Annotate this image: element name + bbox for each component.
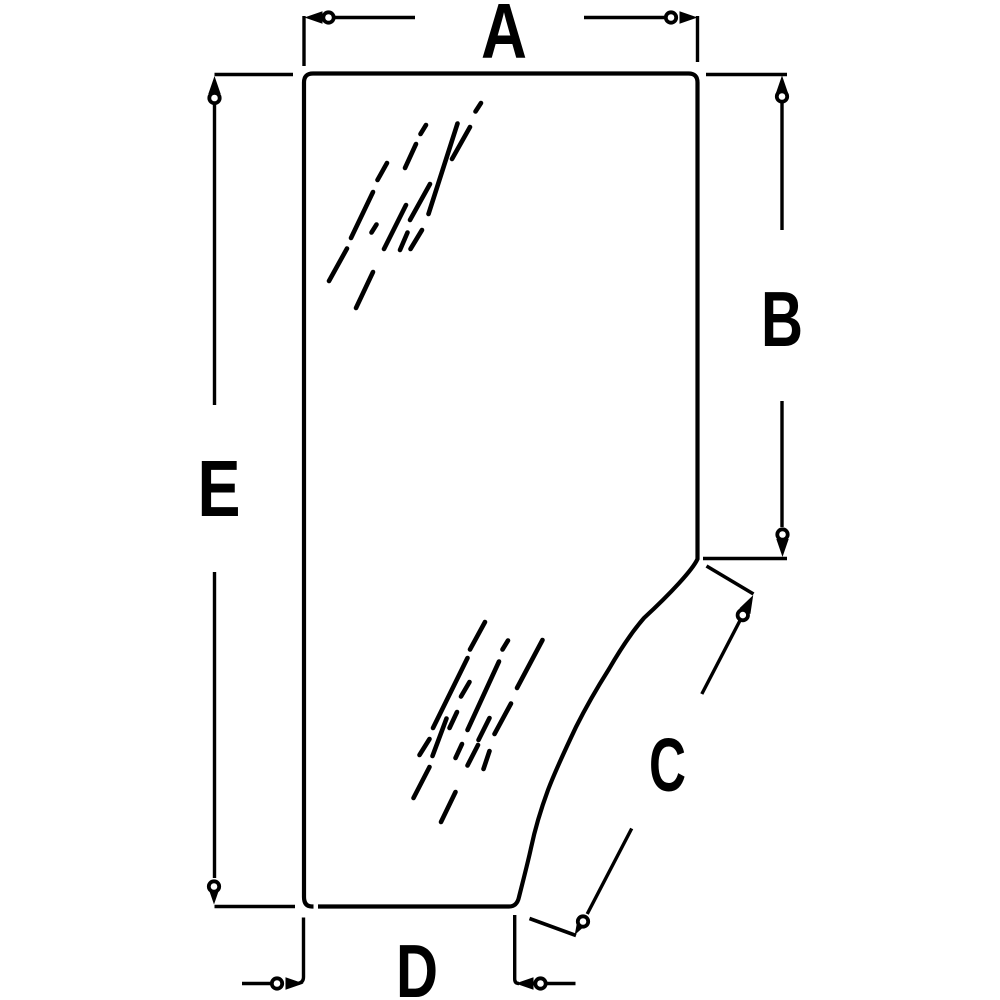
- svg-text:B: B: [761, 275, 803, 363]
- svg-text:C: C: [649, 723, 686, 807]
- svg-text:A: A: [481, 0, 527, 75]
- svg-text:D: D: [396, 929, 438, 1000]
- svg-text:E: E: [198, 444, 241, 533]
